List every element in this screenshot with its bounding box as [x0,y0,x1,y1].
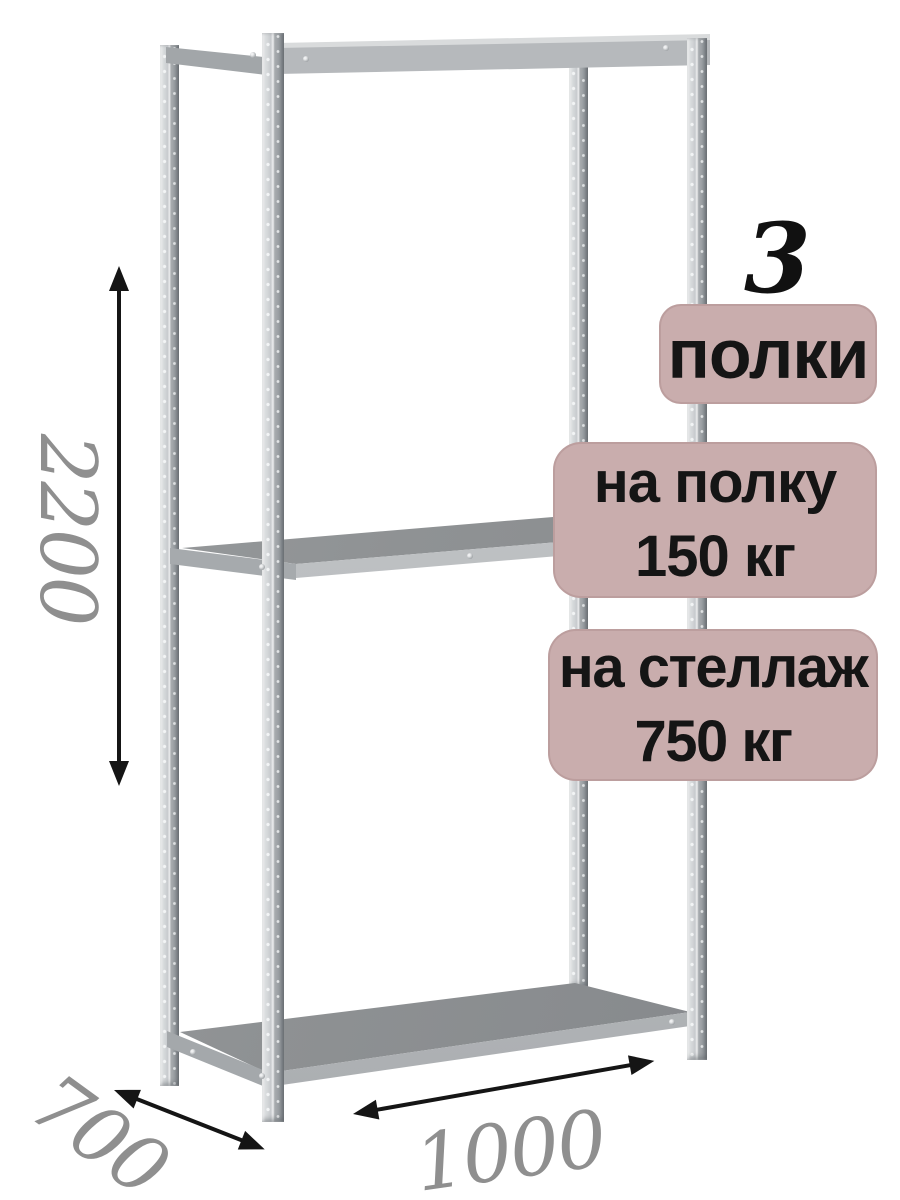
per-rack-load-line1: на стеллаж [559,631,867,705]
shelf-count-unit-label: полки [668,314,869,394]
arrow-head-right-icon [628,1051,656,1075]
per-rack-load-badge: на стеллаж 750 кг [548,629,878,781]
bolt-rivet [259,564,265,570]
bolt-rivet [669,1019,675,1025]
per-shelf-load-badge: на полку 150 кг [553,442,877,598]
bolt-rivet [259,1073,265,1079]
rack-post-front-left [262,33,284,1122]
bolt-rivet [467,553,473,559]
width-dimension-label: 1000 [410,1100,610,1200]
height-dimension-label: 2200 [28,434,106,625]
rack-post-back-left [160,45,179,1086]
arrow-shaft [117,283,122,769]
product-image-canvas: 2200 700 1000 3 полки на полку 150 кг на… [0,0,900,1200]
bolt-rivet [250,52,256,58]
arrow-head-right-icon [238,1131,269,1159]
arrow-head-up-icon [109,266,129,291]
per-shelf-load-line1: на полку [594,446,837,520]
bolt-rivet [303,56,309,62]
per-shelf-load-line2: 150 кг [635,520,795,594]
shelf-count-badge: полки [659,304,877,404]
width-arrow [353,1061,654,1114]
shelf-count-number: 3 [744,220,808,299]
arrow-head-left-icon [351,1100,379,1124]
bolt-rivet [663,45,669,51]
per-rack-load-line2: 750 кг [634,705,791,779]
depth-dimension-label: 700 [18,1062,179,1200]
arrow-head-down-icon [109,761,129,786]
bolt-rivet [190,1049,196,1055]
bottom-shelf-surface [0,0,900,1200]
